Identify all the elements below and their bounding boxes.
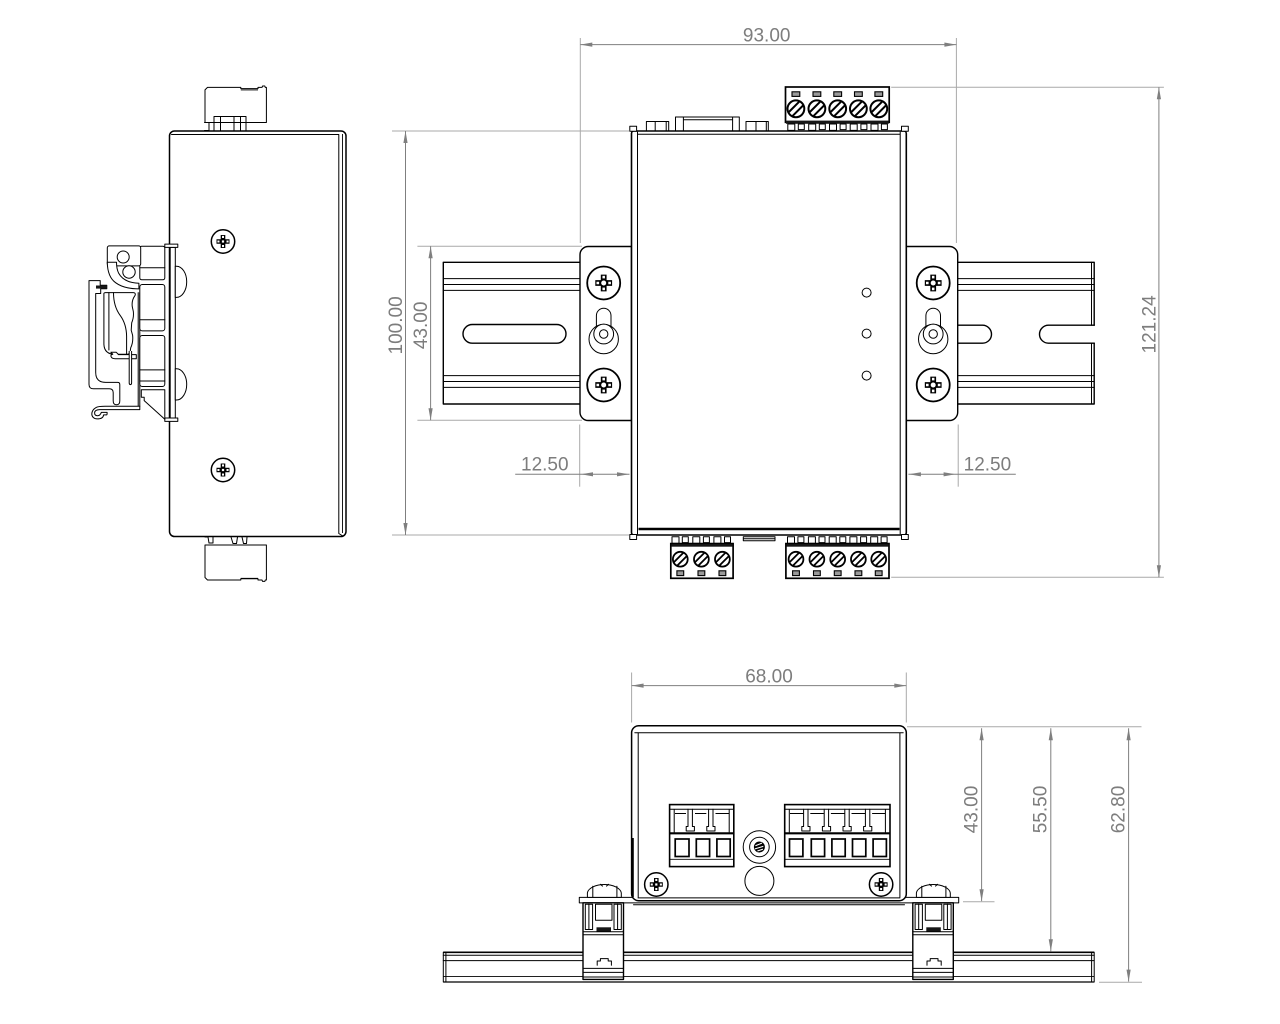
svg-text:100.00: 100.00	[386, 296, 407, 354]
svg-text:68.00: 68.00	[745, 666, 793, 687]
svg-text:55.50: 55.50	[1031, 786, 1052, 834]
svg-text:121.24: 121.24	[1139, 295, 1160, 354]
svg-text:12.50: 12.50	[521, 454, 569, 475]
svg-text:43.00: 43.00	[962, 786, 983, 834]
svg-text:43.00: 43.00	[411, 302, 432, 350]
svg-text:62.80: 62.80	[1109, 786, 1130, 834]
svg-text:93.00: 93.00	[743, 26, 791, 47]
svg-text:12.50: 12.50	[964, 454, 1012, 475]
